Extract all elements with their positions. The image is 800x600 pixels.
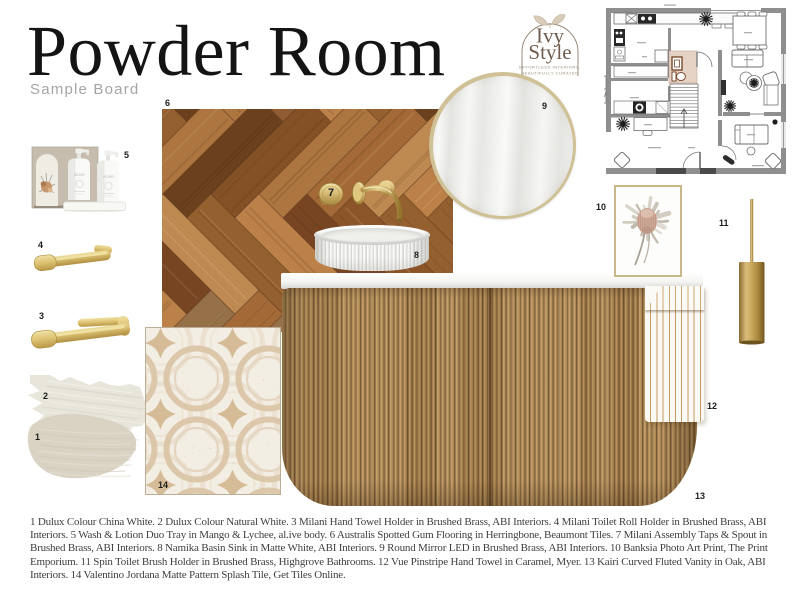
svg-text:EFFORTLESS INTERIORS,: EFFORTLESS INTERIORS, <box>519 65 581 70</box>
svg-text:al.ive: al.ive <box>103 174 114 179</box>
svg-text:al.ive: al.ive <box>74 172 85 177</box>
svg-text:Style: Style <box>528 40 571 64</box>
